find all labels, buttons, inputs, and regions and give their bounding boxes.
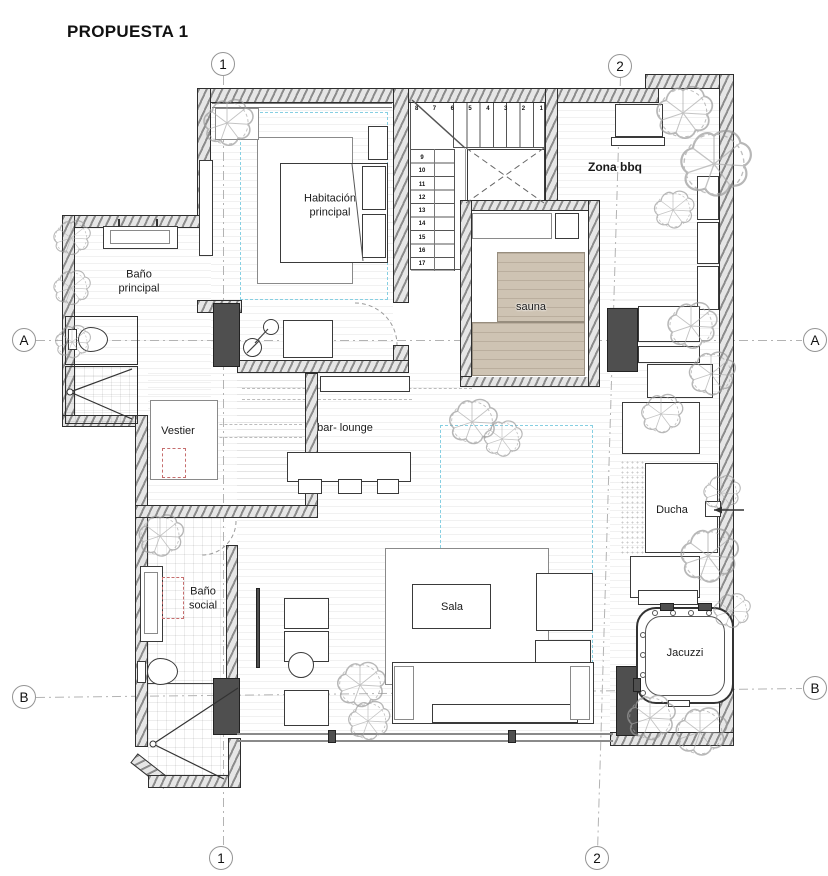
jacuzzi-jet bbox=[688, 610, 694, 616]
plant-icon bbox=[708, 588, 754, 634]
railing bbox=[237, 733, 613, 735]
door-panel-bedroom bbox=[213, 303, 240, 367]
plant-icon bbox=[50, 320, 94, 364]
stair-step-number: 11 bbox=[419, 182, 425, 188]
wardrobe bbox=[199, 160, 213, 256]
stair-step-number: 17 bbox=[419, 261, 426, 267]
closet-sauna-side bbox=[607, 308, 638, 372]
stair-step-number: 14 bbox=[419, 221, 426, 227]
grid-bubble-B-left: B bbox=[12, 685, 36, 709]
stair-step-number: 7 bbox=[433, 106, 436, 112]
sauna-bench-lower bbox=[472, 322, 585, 376]
toilet-tank bbox=[137, 661, 146, 683]
bar-stool bbox=[338, 479, 362, 494]
plant-icon bbox=[132, 508, 188, 564]
jacuzzi-motor bbox=[660, 603, 674, 611]
room-label-sala: Sala bbox=[441, 600, 463, 614]
wall-stair-right bbox=[545, 88, 558, 203]
sideboard bbox=[320, 376, 410, 392]
vestier-closet-marker bbox=[162, 448, 186, 478]
grid-bubble-2-bottom: 2 bbox=[585, 846, 609, 870]
plant-icon bbox=[648, 185, 698, 235]
stair-step-number: 13 bbox=[419, 208, 426, 214]
sofa-armrest bbox=[394, 666, 414, 720]
sofa-cushion bbox=[432, 704, 578, 723]
stair-void bbox=[467, 149, 545, 204]
plant-icon bbox=[698, 470, 744, 516]
room-label-habitacion-principal: Habitación principal bbox=[284, 192, 376, 221]
shower-principal bbox=[65, 366, 138, 424]
stair-step-number: 5 bbox=[468, 106, 471, 112]
room-label-jacuzzi: Jacuzzi bbox=[667, 646, 704, 660]
grid-bubble-B-right: B bbox=[803, 676, 827, 700]
bar-stool bbox=[377, 479, 399, 494]
bar-stool bbox=[298, 479, 322, 494]
room-label-vestier: Vestier bbox=[161, 424, 195, 438]
jacuzzi-jet bbox=[640, 652, 646, 658]
round-stool bbox=[288, 652, 314, 678]
plant-icon bbox=[635, 388, 687, 440]
stair-step-number: 16 bbox=[419, 248, 426, 254]
grid-bubble-2-top: 2 bbox=[608, 54, 632, 78]
side-table bbox=[536, 573, 593, 631]
stair-step-number: 15 bbox=[419, 235, 426, 241]
bed-pillow bbox=[362, 214, 386, 258]
sofa-armrest bbox=[570, 666, 590, 720]
room-label-sauna: sauna bbox=[516, 300, 546, 314]
ducha-drain-strip bbox=[620, 460, 646, 556]
grid-bubble-A-left: A bbox=[12, 328, 36, 352]
room-label-ducha: Ducha bbox=[656, 503, 688, 517]
plant-icon bbox=[48, 215, 94, 261]
railing bbox=[237, 740, 613, 742]
plant-icon bbox=[672, 520, 744, 592]
stair-step-number: 3 bbox=[504, 106, 507, 112]
tap-icon bbox=[156, 219, 158, 227]
vanity-social-basin bbox=[144, 572, 158, 634]
tv-console bbox=[256, 588, 260, 668]
stair-step-number: 9 bbox=[420, 155, 423, 161]
wall-vestier-right bbox=[305, 373, 318, 518]
plant-icon bbox=[342, 695, 394, 747]
grid-bubble-A-right: A bbox=[803, 328, 827, 352]
page-title: PROPUESTA 1 bbox=[67, 22, 188, 42]
door-panel-bottom-left bbox=[213, 678, 240, 735]
stair-step-number: 8 bbox=[415, 106, 418, 112]
plant-icon bbox=[196, 92, 258, 154]
sliding-door-track bbox=[242, 399, 412, 400]
plant-icon bbox=[48, 265, 94, 311]
jacuzzi-jet bbox=[652, 610, 658, 616]
stair-step-number: 2 bbox=[522, 106, 525, 112]
stair-step-number: 6 bbox=[451, 106, 454, 112]
wall-sauna-right bbox=[588, 200, 600, 387]
sauna-window bbox=[555, 213, 579, 239]
plant-icon bbox=[668, 700, 732, 764]
stair-handrail-line bbox=[434, 149, 435, 271]
room-label-bano-principal: Baño principal bbox=[107, 268, 171, 297]
stairs-lower-numbers: 91011121314151617 bbox=[417, 155, 427, 267]
bbq-cabinet bbox=[697, 222, 719, 264]
grid-bubble-1-top: 1 bbox=[211, 52, 235, 76]
plant-icon bbox=[682, 345, 740, 403]
sauna-counter bbox=[472, 213, 552, 239]
room-label-bar-lounge: bar- lounge bbox=[317, 421, 373, 435]
side-stool bbox=[284, 598, 329, 629]
stairs-upper-numbers: 87654321 bbox=[415, 105, 543, 113]
wall-sauna-top bbox=[460, 200, 600, 211]
floor-plan: PROPUESTA 1 87654321 91011121314151617 bbox=[0, 0, 828, 876]
railing-post bbox=[328, 730, 336, 743]
wall-shower-right bbox=[228, 738, 241, 788]
wall-sauna-bottom bbox=[460, 376, 600, 387]
plant-stand bbox=[284, 690, 329, 726]
room-label-zona-bbq: Zona bbq bbox=[588, 160, 642, 176]
stair-step-number: 4 bbox=[486, 106, 489, 112]
bar-counter bbox=[287, 452, 411, 482]
stair-step-number: 1 bbox=[540, 106, 543, 112]
wall-top-main bbox=[197, 88, 659, 103]
stair-step-number: 12 bbox=[419, 195, 426, 201]
room-label-bano-social: Baño social bbox=[179, 585, 227, 614]
bedroom-bench bbox=[283, 320, 333, 358]
jacuzzi-jet bbox=[640, 632, 646, 638]
floor-lamp bbox=[263, 319, 279, 335]
railing-post bbox=[508, 730, 516, 743]
wall-sauna-left bbox=[460, 200, 472, 387]
grid-bubble-1-bottom: 1 bbox=[209, 846, 233, 870]
wall-bedroom-south bbox=[237, 360, 409, 373]
vanity-basin bbox=[110, 230, 170, 244]
floor-lamp-base bbox=[243, 338, 262, 357]
stair-step-number: 10 bbox=[419, 168, 426, 174]
wall-stair-left bbox=[393, 88, 409, 303]
tap-icon bbox=[118, 219, 120, 227]
nightstand bbox=[368, 126, 388, 160]
wall-bano-social-right bbox=[226, 545, 238, 685]
plant-icon bbox=[478, 415, 526, 463]
